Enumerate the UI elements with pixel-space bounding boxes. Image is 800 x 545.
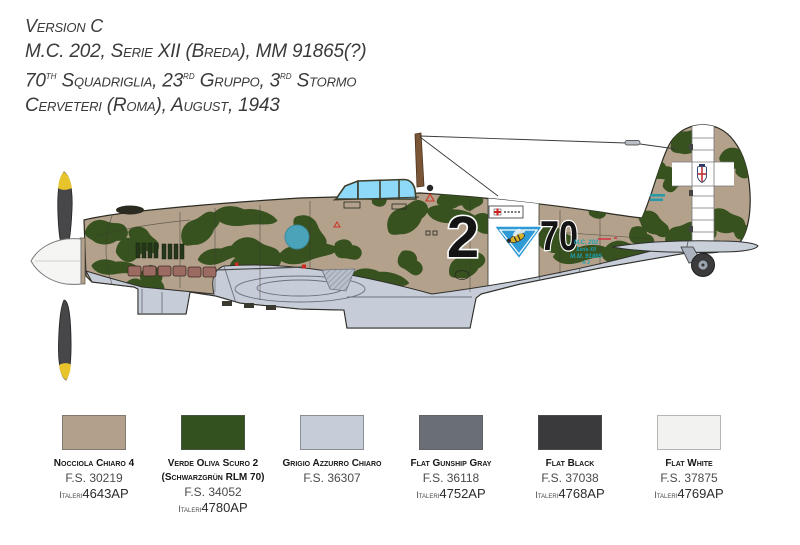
swatch-verde-oliva-scuro: Verde Oliva Scuro 2 (Schwarzgrün RLM 70)… (151, 413, 275, 517)
caption-location-date: Cerveteri (Roma), August, 1943 (25, 93, 366, 118)
fuselage-number-right: 70 (540, 212, 578, 259)
paint-swatch-row: Nocciola Chiaro 4 F.S. 30219 Italeri4643… (0, 413, 800, 517)
svg-text:A 3: A 3 (581, 260, 590, 266)
windscreen (336, 181, 358, 199)
swatch-flat-gunship-gray: Flat Gunship Gray F.S. 36118 Italeri4752… (389, 413, 513, 517)
swatch-color (538, 415, 602, 450)
red-marker-dot-2 (235, 263, 239, 267)
savoia-crest (698, 164, 707, 183)
first-aid-panel (489, 206, 523, 218)
caption-aircraft: M.C. 202, Serie XII (Breda), MM 91865(?) (25, 39, 366, 64)
svg-text:Serie XII: Serie XII (576, 247, 596, 253)
caption-version: Version C (25, 14, 366, 39)
caption-unit: 70th Squadriglia, 23rd Gruppo, 3rd Storm… (25, 64, 366, 93)
swatch-color (181, 415, 245, 450)
caption-block: Version C M.C. 202, Serie XII (Breda), M… (25, 14, 366, 118)
fuel-filler-dot (427, 185, 433, 191)
supercharger-intake (116, 206, 144, 215)
propeller (31, 172, 85, 380)
overpainted-roundel-disc (285, 225, 309, 249)
canopy (333, 180, 419, 201)
svg-text:M.C. 202: M.C. 202 (574, 240, 599, 246)
swatch-color (62, 415, 126, 450)
propeller-tip-bottom (59, 363, 71, 380)
swatch-color (300, 415, 364, 450)
antenna-mast (415, 133, 424, 187)
swatch-flat-black: Flat Black F.S. 37038 Italeri4768AP (508, 413, 632, 517)
propeller-tip-top (58, 172, 72, 190)
antenna-turnbuckle (625, 141, 640, 146)
swatch-nocciola-chiaro: Nocciola Chiaro 4 F.S. 30219 Italeri4643… (32, 413, 156, 517)
red-marker-dot (302, 265, 306, 269)
swatch-flat-white: Flat White F.S. 37875 Italeri4769AP (627, 413, 751, 517)
swatch-color (419, 415, 483, 450)
fuselage-number-left: 2 (447, 205, 479, 270)
instruction-sheet-page: 2 70 M.C. 202 Serie XII M.M. 91865 A 3 (0, 0, 800, 545)
swatch-color (657, 415, 721, 450)
swatch-grigio-azzurro: Grigio Azzurro Chiaro F.S. 36307 (270, 413, 394, 517)
